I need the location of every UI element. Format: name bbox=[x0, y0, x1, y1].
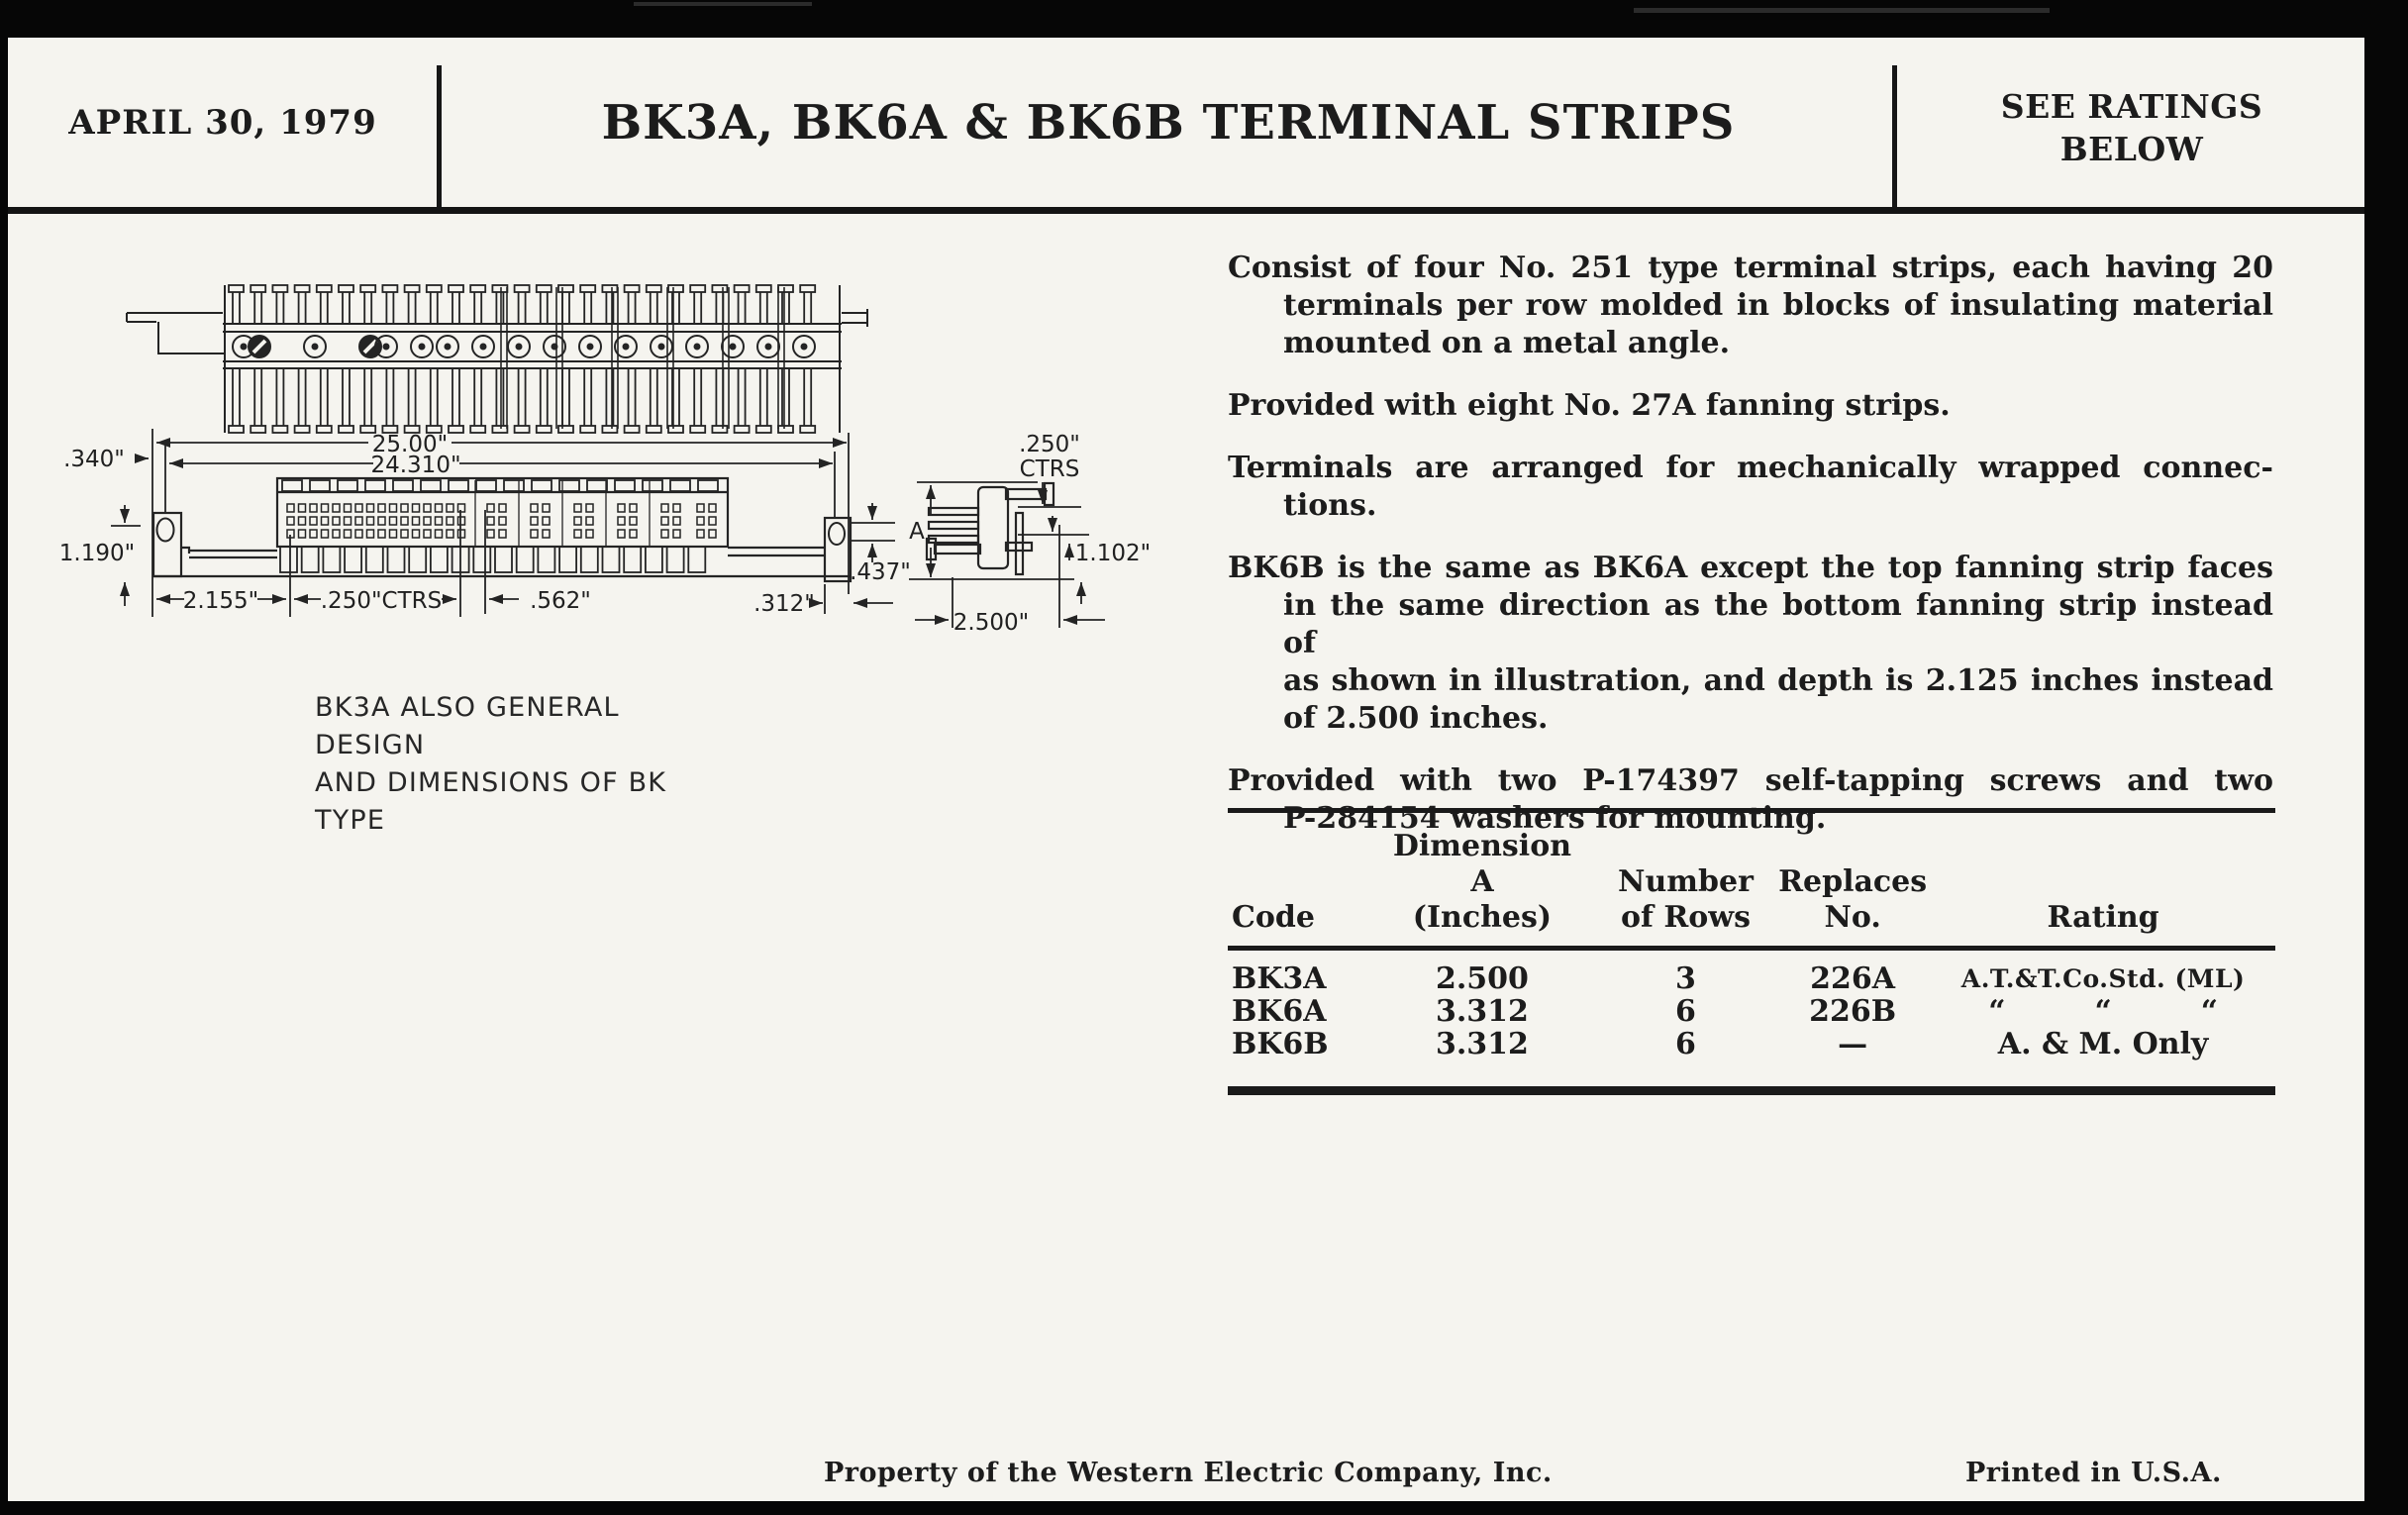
dimension-label: CTRS bbox=[1020, 456, 1080, 482]
dimension-label: .340" bbox=[63, 447, 125, 472]
header-rule bbox=[8, 207, 2364, 214]
spec-line: Provided with two P-174397 self-tapping … bbox=[1228, 762, 2273, 800]
side-view-outline bbox=[927, 483, 1053, 574]
spec-text: Consist of four No. 251 type terminal st… bbox=[1228, 250, 2273, 862]
dimension-label: A bbox=[909, 519, 925, 545]
table-cell: “ “ “ bbox=[1931, 995, 2275, 1028]
drawing-caption-line: BK3A ALSO GENERAL DESIGN bbox=[315, 689, 731, 764]
table-body: BK3A2.5003226AA.T.&T.Co.Std. (ML)BK6A3.3… bbox=[1228, 951, 2275, 1086]
dimension-label: 1.102" bbox=[1075, 541, 1151, 566]
table-header-cell: ReplacesNo. bbox=[1774, 864, 1931, 936]
table-header-cell: Rating bbox=[1931, 900, 2275, 936]
dimension-label: 2.500" bbox=[953, 610, 1029, 636]
table-cell: A. & M. Only bbox=[1931, 1028, 2275, 1060]
spec-line: mounted on a metal angle. bbox=[1228, 325, 2273, 362]
table-cell: 3.312 bbox=[1367, 995, 1597, 1028]
table-header-cell: Numberof Rows bbox=[1597, 864, 1774, 936]
document-date: APRIL 30, 1979 bbox=[59, 103, 386, 143]
spec-line: BK6B is the same as BK6A except the top … bbox=[1228, 550, 2273, 587]
spec-line: tions. bbox=[1228, 487, 2273, 525]
ratings-note: SEE RATINGS BELOW bbox=[1904, 85, 2359, 170]
table-header-row: CodeDimensionA(Inches)Numberof RowsRepla… bbox=[1228, 813, 2275, 946]
footer-property-notice: Property of the Western Electric Company… bbox=[824, 1458, 1553, 1488]
drawing-caption: BK3A ALSO GENERAL DESIGN AND DIMENSIONS … bbox=[315, 689, 731, 840]
table-cell: — bbox=[1774, 1028, 1931, 1060]
table-rule-bottom bbox=[1228, 1086, 2275, 1095]
table-cell: BK3A bbox=[1228, 962, 1367, 995]
spec-line: as shown in illustration, and depth is 2… bbox=[1228, 662, 2273, 700]
page-title: BK3A, BK6A & BK6B TERMINAL STRIPS bbox=[451, 95, 1886, 151]
ratings-note-line: SEE RATINGS bbox=[1904, 85, 2359, 128]
header-divider bbox=[1892, 65, 1897, 211]
table-cell: 6 bbox=[1597, 995, 1774, 1028]
table-row: BK6A3.3126226B“ “ “ bbox=[1228, 995, 2275, 1028]
ratings-table: CodeDimensionA(Inches)Numberof RowsRepla… bbox=[1228, 808, 2275, 1095]
table-cell: BK6A bbox=[1228, 995, 1367, 1028]
ratings-note-line: BELOW bbox=[1904, 128, 2359, 170]
spec-paragraph: BK6B is the same as BK6A except the top … bbox=[1228, 550, 2273, 738]
table-cell: 226A bbox=[1774, 962, 1931, 995]
spec-line: Consist of four No. 251 type terminal st… bbox=[1228, 250, 2273, 287]
table-header-cell: DimensionA(Inches) bbox=[1367, 829, 1597, 936]
spec-paragraph: Provided with eight No. 27A fanning stri… bbox=[1228, 387, 2273, 425]
scan-streak bbox=[634, 2, 812, 6]
scanned-datasheet: APRIL 30, 1979 BK3A, BK6A & BK6B TERMINA… bbox=[0, 0, 2408, 1515]
table-cell: 6 bbox=[1597, 1028, 1774, 1060]
spec-line: in the same direction as the bottom fann… bbox=[1228, 587, 2273, 662]
table-cell: 226B bbox=[1774, 995, 1931, 1028]
header-divider bbox=[437, 65, 442, 211]
footer-printed-notice: Printed in U.S.A. bbox=[1965, 1458, 2222, 1488]
table-cell: 3.312 bbox=[1367, 1028, 1597, 1060]
dimension-label: .250"CTRS bbox=[321, 588, 442, 614]
drawing-caption-line: AND DIMENSIONS OF BK TYPE bbox=[315, 764, 731, 840]
dimension-label: 24.310" bbox=[370, 453, 460, 478]
table-row: BK3A2.5003226AA.T.&T.Co.Std. (ML) bbox=[1228, 962, 2275, 995]
table-cell: BK6B bbox=[1228, 1028, 1367, 1060]
scan-streak bbox=[1634, 8, 2050, 13]
dimension-label: .312" bbox=[753, 591, 815, 617]
spec-line: terminals per row molded in blocks of in… bbox=[1228, 287, 2273, 325]
dimension-label: 2.155" bbox=[183, 588, 258, 614]
table-header-cell: Code bbox=[1228, 900, 1367, 936]
dimension-labels: .340"25.00"24.310"1.190"2.155".250"CTRS.… bbox=[59, 432, 1151, 636]
spec-paragraph: Consist of four No. 251 type terminal st… bbox=[1228, 250, 2273, 362]
spec-line: Provided with eight No. 27A fanning stri… bbox=[1228, 387, 2273, 425]
spec-line: Terminals are arranged for mechanically … bbox=[1228, 450, 2273, 487]
dimension-label: .562" bbox=[530, 588, 591, 614]
spec-paragraph: Terminals are arranged for mechanically … bbox=[1228, 450, 2273, 525]
dimension-label: 1.190" bbox=[59, 541, 135, 566]
dimension-label: .437" bbox=[850, 559, 911, 585]
table-cell: A.T.&T.Co.Std. (ML) bbox=[1931, 962, 2275, 995]
table-cell: 3 bbox=[1597, 962, 1774, 995]
terminal-strip-drawing: .340"25.00"24.310"1.190"2.155".250"CTRS.… bbox=[0, 238, 1168, 644]
table-cell: 2.500 bbox=[1367, 962, 1597, 995]
table-row: BK6B3.3126—A. & M. Only bbox=[1228, 1028, 2275, 1060]
dimension-label: .250" bbox=[1019, 432, 1080, 457]
spec-line: of 2.500 inches. bbox=[1228, 700, 2273, 738]
